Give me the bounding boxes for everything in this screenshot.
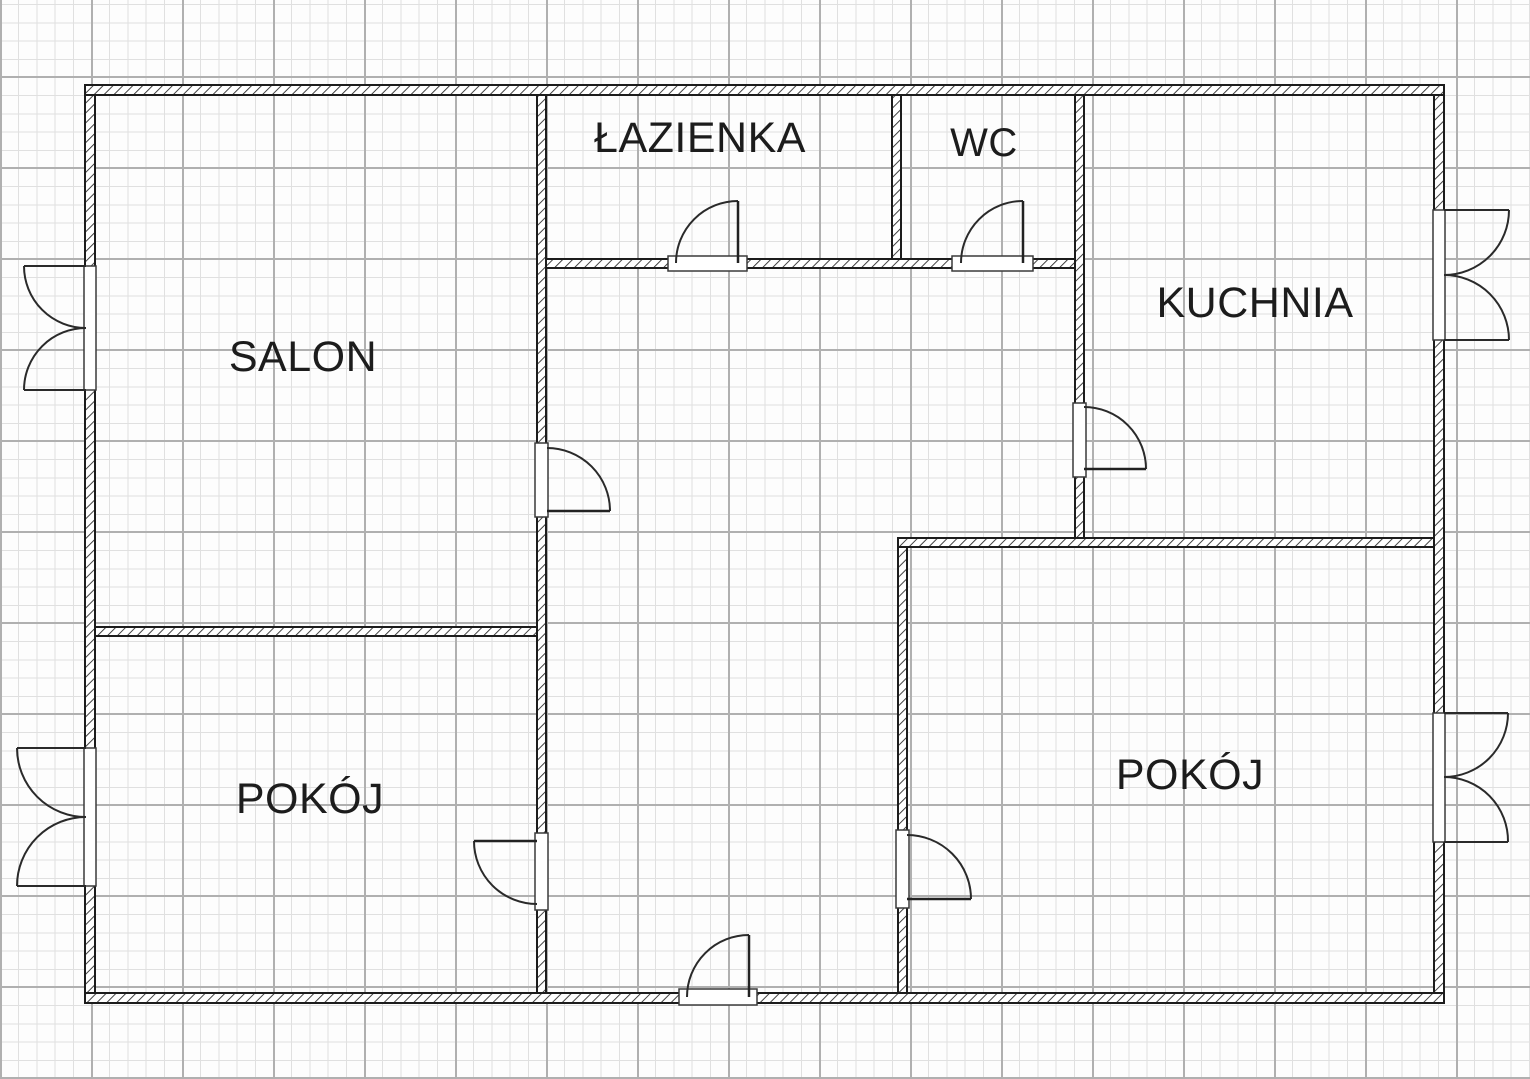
door-casing xyxy=(896,830,909,908)
window-swing-arc xyxy=(24,266,86,328)
floor-plan-page: SALON ŁAZIENKA WC KUCHNIA POKÓJ POKÓJ xyxy=(0,0,1530,1079)
window-swing-arc xyxy=(17,748,86,817)
door-casing xyxy=(1073,403,1086,477)
room-label-kuchnia: KUCHNIA xyxy=(1156,279,1353,327)
door-swing-arc xyxy=(961,201,1023,263)
floor-plan-drawing: SALON ŁAZIENKA WC KUCHNIA POKÓJ POKÓJ xyxy=(0,0,1530,1079)
window-swing-arc xyxy=(1444,713,1508,777)
window-pokoj-left xyxy=(17,748,96,886)
wall-outer-top xyxy=(85,85,1444,95)
window-swing-arc xyxy=(1444,210,1509,275)
window-frame xyxy=(1433,713,1445,842)
door-wc xyxy=(952,201,1033,271)
window-pokoj-right xyxy=(1433,713,1508,842)
room-label-salon: SALON xyxy=(229,333,377,381)
walls xyxy=(85,85,1444,1003)
door-swing-arc xyxy=(474,841,537,904)
door-casing xyxy=(535,443,548,517)
door-swing-arc xyxy=(547,448,610,511)
wall-corridor-pokoj-right xyxy=(898,547,907,993)
room-label-pokoj-right: POKÓJ xyxy=(1116,751,1264,799)
door-swing-arc xyxy=(676,201,738,263)
window-swing-arc xyxy=(17,817,86,886)
door-threshold xyxy=(679,989,757,1005)
door-lazienka xyxy=(668,201,747,271)
room-label-lazienka: ŁAZIENKA xyxy=(594,114,806,162)
door-threshold xyxy=(952,256,1033,271)
window-kuchnia xyxy=(1433,210,1509,340)
door-pokoj-right xyxy=(896,830,971,908)
door-salon xyxy=(535,443,610,517)
window-salon xyxy=(24,266,96,390)
door-swing-arc xyxy=(907,835,971,899)
wall-kuchnia-pokoj xyxy=(898,538,1434,547)
door-casing xyxy=(535,833,548,910)
door-pokoj-left xyxy=(474,833,548,910)
door-threshold xyxy=(668,256,747,271)
door-swing-arc xyxy=(687,935,749,997)
window-swing-arc xyxy=(1444,275,1509,340)
wall-bath-wc-divider xyxy=(892,95,901,259)
window-swing-arc xyxy=(24,328,86,390)
window-frame xyxy=(1433,210,1445,340)
room-label-wc: WC xyxy=(950,121,1018,165)
window-swing-arc xyxy=(1444,777,1508,842)
door-swing-arc xyxy=(1084,407,1146,469)
wall-salon-pokoj xyxy=(95,627,537,636)
wall-outer-bottom xyxy=(85,993,1444,1003)
door-kuchnia xyxy=(1073,403,1146,477)
room-labels: SALON ŁAZIENKA WC KUCHNIA POKÓJ POKÓJ xyxy=(229,114,1354,823)
room-label-pokoj-left: POKÓJ xyxy=(236,775,384,823)
door-entrance xyxy=(679,935,757,1005)
